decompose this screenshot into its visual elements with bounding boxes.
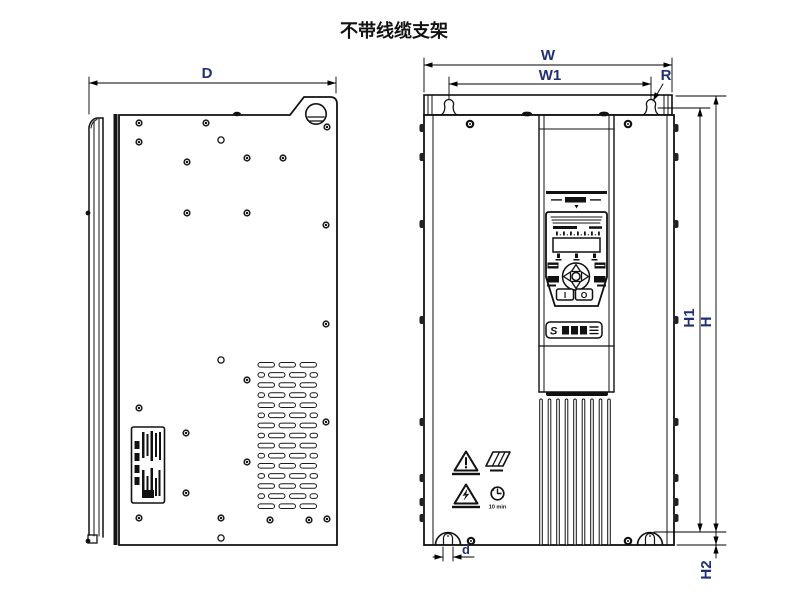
page-title: 不带线缆支架 (340, 20, 448, 41)
brand-badge-chars (562, 326, 598, 335)
brand-logo-glyph: S (550, 326, 558, 338)
top-clip-right (599, 112, 609, 117)
dim-bottom-offset-label: H2 (698, 560, 715, 579)
keypad: I O (546, 212, 607, 306)
side-view: D (86, 65, 337, 545)
dim-depth-label: D (202, 65, 213, 82)
dim-mount-width-label: W1 (539, 67, 562, 84)
dim-height-label: H (698, 317, 715, 328)
side-seam (114, 114, 118, 545)
dim-mount-height-label: H1 (681, 308, 698, 327)
brand-badge: S (546, 322, 602, 338)
mounting-rail (424, 95, 672, 115)
heatsink-fins (540, 399, 611, 545)
nameplate (132, 427, 165, 503)
dim-slot-width-label: d (462, 542, 470, 557)
top-edge-screw (233, 112, 241, 116)
dim-width-label: W (541, 47, 556, 64)
top-clip-left (522, 112, 532, 117)
heatsink-top-bar (546, 392, 608, 397)
lcd-display (553, 238, 600, 252)
stop-button-label: O (581, 290, 588, 300)
drawing-canvas: 不带线缆支架 (0, 0, 792, 605)
dim-slot-radius-label: R (661, 67, 672, 84)
run-button-label: I (564, 290, 566, 300)
side-front-panel (86, 118, 103, 543)
wait-time-label: 10 min (489, 505, 507, 511)
